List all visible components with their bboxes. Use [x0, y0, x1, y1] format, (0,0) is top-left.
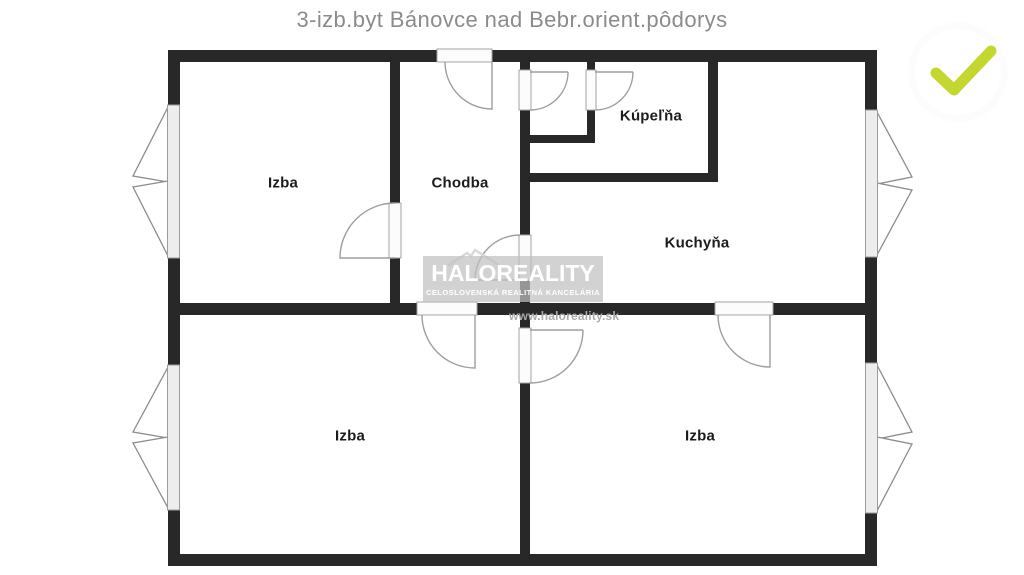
watermark-website-text: www.haloreality.sk	[509, 309, 619, 323]
verified-badge	[898, 18, 1022, 130]
door-wc	[519, 70, 568, 110]
watermark-brand-text: HALOREALITY	[431, 261, 595, 286]
door-kupelna	[586, 70, 633, 110]
door-izba-bottom-left	[417, 302, 477, 368]
window-right-bottom	[866, 363, 913, 513]
room-label-kuchyna: Kuchyňa	[665, 235, 730, 252]
door-izba-top-left	[340, 203, 401, 258]
watermark-tagline-text: CELOSLOVENSKÁ REALITNÁ KANCELÁRIA	[426, 288, 600, 297]
room-label-chodba: Chodba	[431, 175, 488, 192]
window-left-top	[133, 105, 180, 258]
room-label-kupelna: Kúpeľňa	[620, 108, 682, 125]
window-right-top	[866, 110, 913, 257]
room-label-izba-bottom-right: Izba	[685, 428, 715, 445]
door-izba-bottom-right	[715, 302, 773, 367]
window-left-bottom	[133, 365, 180, 510]
door-entrance	[437, 49, 492, 109]
room-label-izba-bottom-left: Izba	[335, 428, 365, 445]
door-between-bottom-rooms	[519, 328, 583, 383]
floor-plan-page: 3-izb.byt Bánovce nad Bebr.orient.pôdory…	[0, 0, 1024, 575]
watermark-logo-box: HALOREALITY CELOSLOVENSKÁ REALITNÁ KANCE…	[423, 256, 603, 302]
room-label-izba-top-left: Izba	[268, 175, 298, 192]
